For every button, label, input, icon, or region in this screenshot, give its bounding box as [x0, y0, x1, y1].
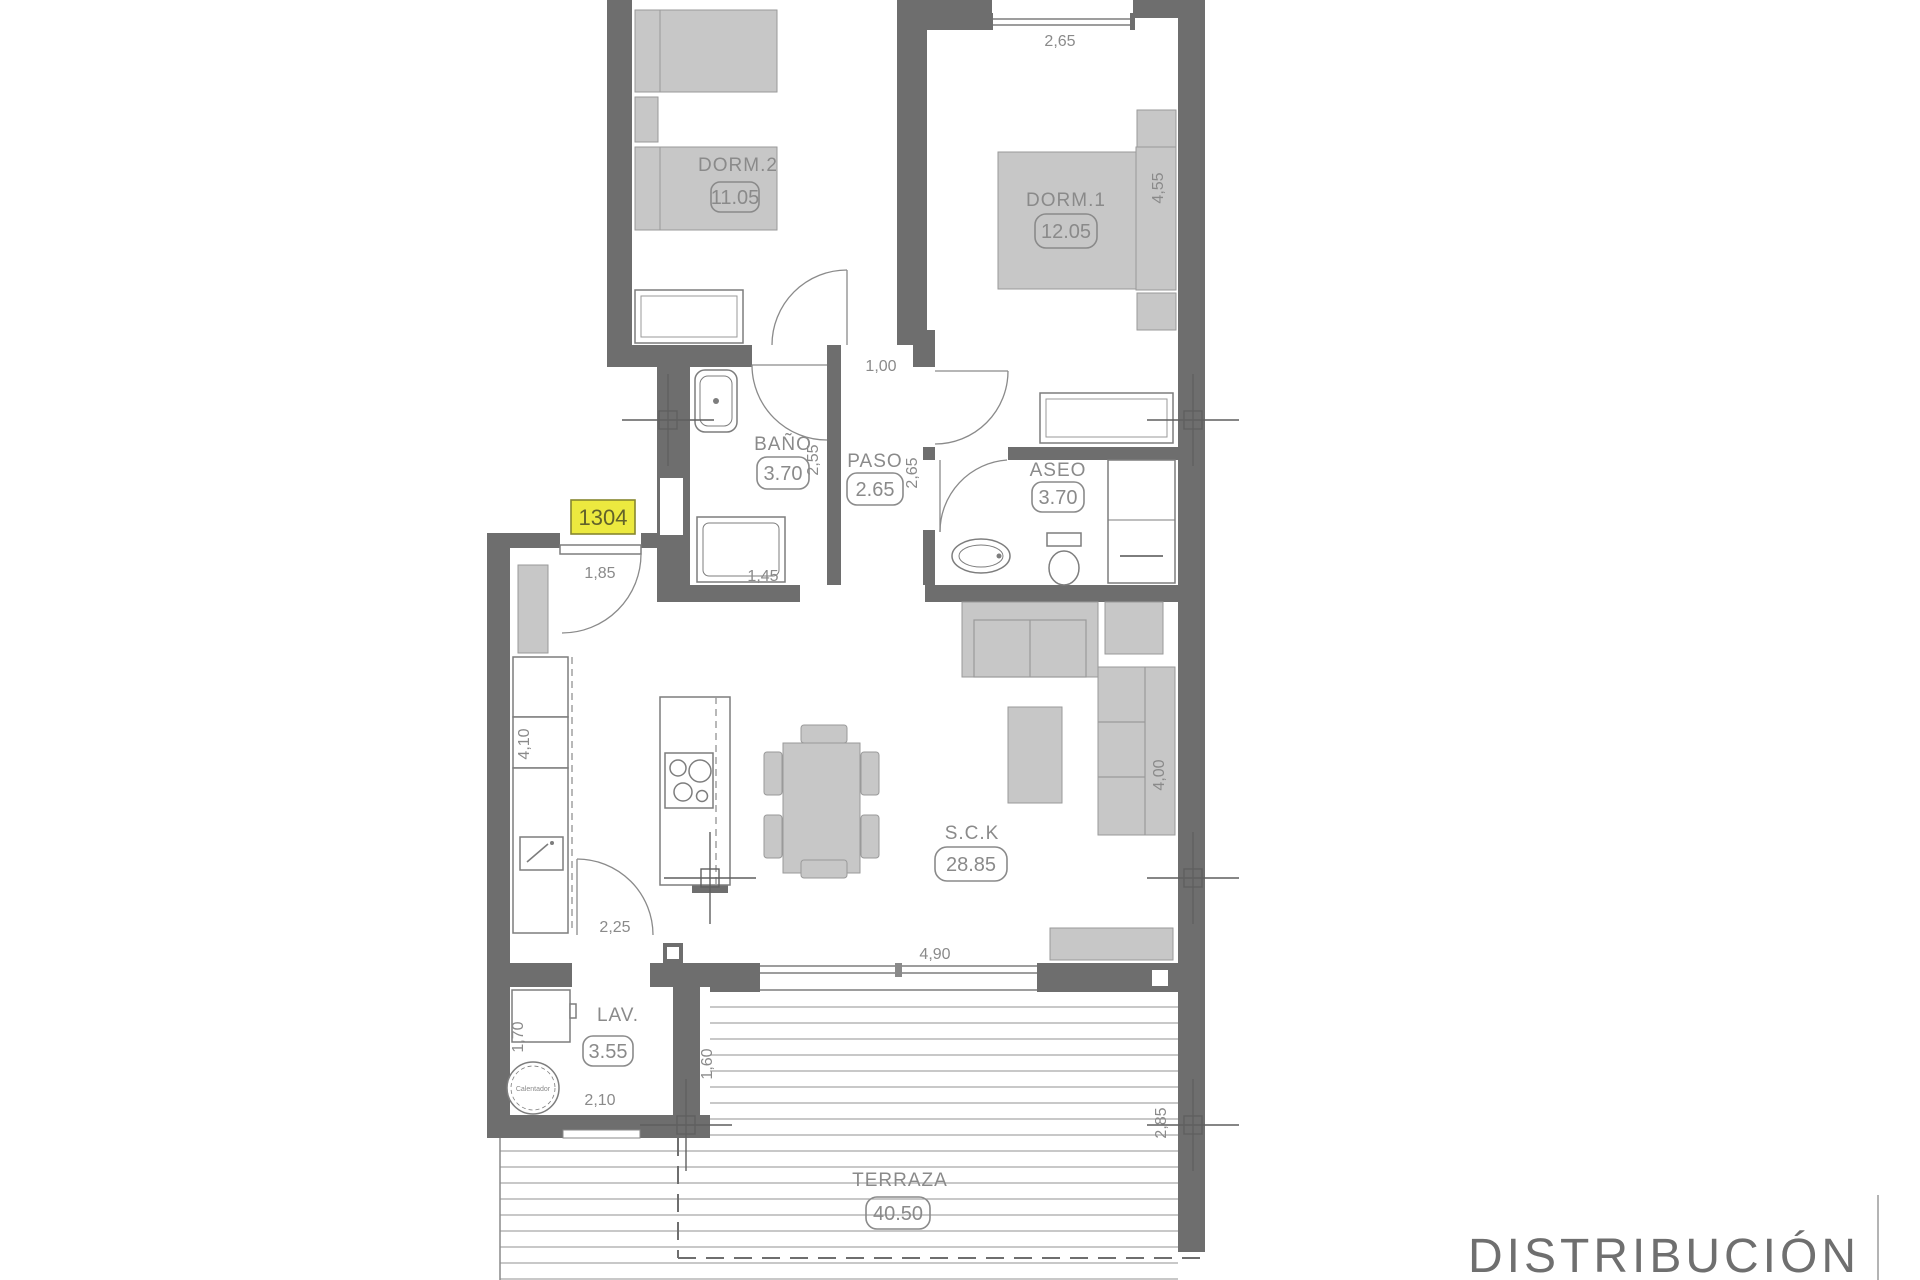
- dining-table: [783, 743, 860, 873]
- aseo-door: [940, 460, 1007, 532]
- bed-headboard: [1136, 147, 1176, 290]
- living-dining-furniture: [764, 602, 1175, 960]
- floor-plan-sheet: Calentador: [0, 0, 1920, 1280]
- dining-chair: [861, 752, 879, 795]
- toilet-tank: [1047, 533, 1081, 546]
- dining-chair: [764, 815, 782, 858]
- dim-terraza-offset: 1,60: [699, 1048, 716, 1079]
- dining-chair: [861, 815, 879, 858]
- room-area-dorm2: 11.05: [711, 187, 760, 209]
- room-name-aseo: ASEO: [1030, 460, 1087, 481]
- dim-living-window: 4,90: [919, 946, 950, 963]
- dim-paso-door: 1,00: [865, 358, 896, 375]
- nightstand: [1137, 110, 1176, 147]
- dining-chair: [801, 860, 847, 878]
- room-name-paso: PASO: [847, 451, 902, 472]
- nightstand: [635, 97, 658, 142]
- coffee-table: [1008, 707, 1062, 803]
- sectional-sofa: [1098, 667, 1175, 835]
- unit-badge: 1304: [571, 500, 635, 534]
- kitchen-sink: [520, 837, 563, 870]
- dim-dorm1-depth: 4,55: [1150, 172, 1167, 203]
- tv-bench: [1050, 928, 1173, 960]
- room-name-dorm2: DORM.2: [698, 155, 778, 176]
- room-name-dorm1: DORM.1: [1026, 190, 1106, 211]
- dim-kitchen-depth: 4,10: [516, 728, 533, 759]
- dim-kitchen-pass: 2,25: [599, 919, 630, 936]
- lav-vent-window: [563, 1122, 640, 1138]
- dim-paso-depth: 2,65: [904, 457, 921, 488]
- dim-sofa-wall: 4,00: [1151, 759, 1168, 790]
- dim-terraza-right: 2,85: [1153, 1107, 1170, 1138]
- entry-door: [560, 545, 641, 633]
- wardrobe: [635, 290, 743, 343]
- room-area-bano: 3.70: [764, 463, 803, 485]
- kitchen-cabinet: [513, 657, 568, 717]
- room-area-aseo: 3.70: [1039, 487, 1078, 509]
- dim-bano-depth: 2,55: [805, 444, 822, 475]
- wardrobe: [1040, 393, 1173, 443]
- room-area-dorm1: 12.05: [1041, 221, 1091, 243]
- dorm1-window: [988, 13, 1135, 30]
- dorm2-furniture: [635, 10, 777, 343]
- sheet-title: DISTRIBUCIÓN: [1468, 1229, 1860, 1280]
- floor-plan-drawing: Calentador: [0, 0, 1920, 1280]
- dorm1-furniture: [998, 110, 1176, 443]
- dim-lav-width: 2,10: [584, 1092, 615, 1109]
- side-table: [1105, 602, 1163, 654]
- dim-bathtub: 1,45: [747, 568, 778, 585]
- dim-lav-left: 1,70: [510, 1021, 527, 1052]
- bed-single-1: [635, 10, 777, 92]
- dorm1-door: [935, 371, 1008, 444]
- dim-entry-door: 1,85: [584, 565, 615, 582]
- dining-chair: [801, 725, 847, 743]
- room-area-lav: 3.55: [589, 1041, 628, 1063]
- unit-number: 1304: [579, 505, 628, 530]
- room-area-terraza: 40.50: [873, 1203, 923, 1225]
- shower: [1108, 460, 1175, 583]
- title-block: DISTRIBUCIÓN: [1468, 1195, 1878, 1280]
- room-area-sck: 28.85: [946, 854, 996, 876]
- room-name-lav: LAV.: [597, 1005, 639, 1026]
- fridge: [518, 565, 548, 653]
- dim-dorm1-width: 2,65: [1044, 33, 1075, 50]
- room-area-paso: 2.65: [856, 479, 895, 501]
- nightstand: [1137, 293, 1176, 330]
- living-room-window: [760, 963, 1037, 990]
- bano-door: [752, 365, 827, 440]
- room-name-bano: BAÑO: [754, 433, 812, 455]
- room-name-sck: S.C.K: [945, 823, 1000, 844]
- room-name-terraza: TERRAZA: [852, 1170, 948, 1191]
- toilet-bowl: [1049, 551, 1079, 585]
- dining-chair: [764, 752, 782, 795]
- water-heater-label: Calentador: [516, 1086, 551, 1093]
- dorm2-door: [772, 270, 847, 345]
